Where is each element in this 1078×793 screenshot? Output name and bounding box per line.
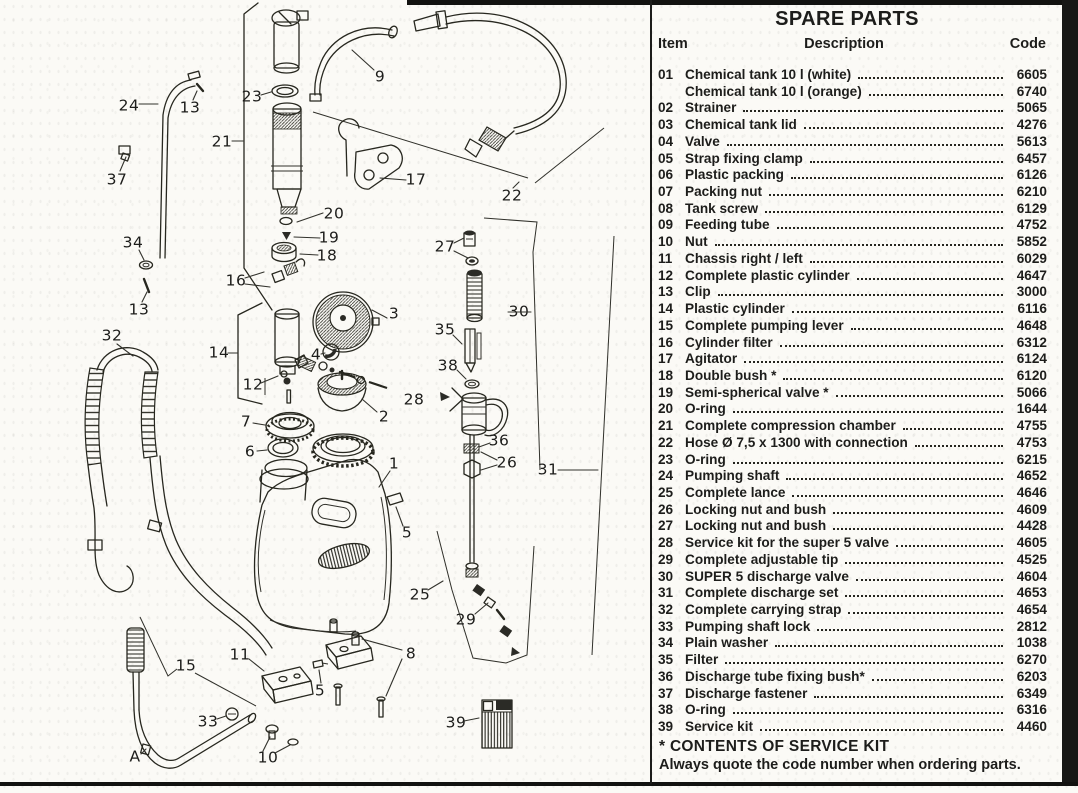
svg-text:14: 14 xyxy=(209,344,230,362)
callout-31: 31 xyxy=(538,461,598,479)
parts-table-row: 27Locking nut and bush4428 xyxy=(658,518,1047,535)
cell-desc: Strap fixing clamp xyxy=(685,151,803,166)
cell-item: 20 xyxy=(658,401,685,416)
svg-text:18: 18 xyxy=(317,247,338,265)
cell-item: 29 xyxy=(658,552,685,567)
cell-desc: Discharge tube fixing bush* xyxy=(685,669,865,684)
parts-table-row: 19Semi-spherical valve *5066 xyxy=(658,385,1047,402)
cell-desc: Double bush * xyxy=(685,368,776,383)
parts-table-row: 10Nut5852 xyxy=(658,234,1047,251)
parts-table-row: 25Complete lance4646 xyxy=(658,485,1047,502)
cell-code: 6215 xyxy=(1009,452,1047,467)
cell-desc: O-ring xyxy=(685,452,726,467)
callout-24: 24 xyxy=(119,97,158,115)
parts-table-row: 16Cylinder filter6312 xyxy=(658,335,1047,352)
cell-desc: O-ring xyxy=(685,401,726,416)
svg-text:A: A xyxy=(129,748,140,766)
cell-code: 6349 xyxy=(1009,686,1047,701)
cell-item: 05 xyxy=(658,151,685,166)
lance-drawing xyxy=(437,435,534,663)
parts-table-row: 18Double bush *6120 xyxy=(658,368,1047,385)
cell-desc: Chemical tank lid xyxy=(685,117,797,132)
dotted-leader xyxy=(769,194,1003,196)
cell-item: 34 xyxy=(658,635,685,650)
svg-text:17: 17 xyxy=(406,171,427,189)
dotted-leader xyxy=(715,244,1003,246)
cell-code: 4605 xyxy=(1009,535,1047,550)
column-header-code: Code xyxy=(996,36,1046,52)
callout-37: 37 xyxy=(107,157,128,189)
cell-code: 4428 xyxy=(1009,518,1047,533)
dotted-leader xyxy=(792,495,1003,497)
dotted-leader xyxy=(903,428,1003,430)
cell-desc: Plastic cylinder xyxy=(685,301,785,316)
callout-25: 25 xyxy=(410,581,443,604)
dotted-leader xyxy=(765,211,1003,213)
parts-table-row: 03Chemical tank lid4276 xyxy=(658,117,1047,134)
svg-text:13: 13 xyxy=(180,99,201,117)
dotted-leader xyxy=(727,144,1003,146)
parts-table-row: 08Tank screw6129 xyxy=(658,201,1047,218)
cell-item: 30 xyxy=(658,569,685,584)
svg-text:8: 8 xyxy=(406,645,416,663)
carrying-strap-drawing xyxy=(85,348,272,655)
parts-table-row: 38O-ring6316 xyxy=(658,702,1047,719)
cell-code: 2812 xyxy=(1009,619,1047,634)
svg-text:9: 9 xyxy=(375,68,385,86)
svg-text:29: 29 xyxy=(456,611,477,629)
parts-table-row: 29Complete adjustable tip4525 xyxy=(658,552,1047,569)
parts-table-row: 33Pumping shaft lock2812 xyxy=(658,619,1047,636)
cell-item: 09 xyxy=(658,217,685,232)
svg-text:35: 35 xyxy=(435,321,456,339)
dotted-leader xyxy=(896,545,1003,547)
cell-item: 26 xyxy=(658,502,685,517)
parts-table-row: 34Plain washer1038 xyxy=(658,635,1047,652)
cell-desc: Tank screw xyxy=(685,201,758,216)
parts-table-row: Chemical tank 10 l (orange)6740 xyxy=(658,84,1047,101)
cell-desc: Complete carrying strap xyxy=(685,602,841,617)
callout-5: 5 xyxy=(396,507,412,542)
dotted-leader xyxy=(791,177,1003,179)
exploded-view-diagram: 2413372123917222019183416271332141234353… xyxy=(0,0,650,783)
parts-table-row: 04Valve5613 xyxy=(658,134,1047,151)
parts-table-row: 21Complete compression chamber4755 xyxy=(658,418,1047,435)
parts-table-row: 12Complete plastic cylinder4647 xyxy=(658,268,1047,285)
svg-text:33: 33 xyxy=(198,713,219,731)
callout-29: 29 xyxy=(456,603,488,629)
cell-code: 6457 xyxy=(1009,151,1047,166)
callout-6: 6 xyxy=(245,443,267,461)
cell-item: 32 xyxy=(658,602,685,617)
cell-desc: Cylinder filter xyxy=(685,335,773,350)
cell-code: 6124 xyxy=(1009,351,1047,366)
cell-item: 04 xyxy=(658,134,685,149)
svg-text:28: 28 xyxy=(404,391,425,409)
cell-desc: Packing nut xyxy=(685,184,762,199)
cell-code: 6203 xyxy=(1009,669,1047,684)
cell-item: 25 xyxy=(658,485,685,500)
callout-34: 34 xyxy=(123,234,144,261)
dotted-leader xyxy=(856,579,1003,581)
svg-text:21: 21 xyxy=(212,133,233,151)
callout-3: 3 xyxy=(372,305,399,323)
cell-item: 39 xyxy=(658,719,685,734)
cell-item: 02 xyxy=(658,100,685,115)
parts-table-row: 32Complete carrying strap4654 xyxy=(658,602,1047,619)
cell-item: 38 xyxy=(658,702,685,717)
parts-table-row: 09Feeding tube4752 xyxy=(658,217,1047,234)
dotted-leader xyxy=(845,595,1003,597)
callout-15: 15 xyxy=(176,657,197,675)
table-header: Item Description Code xyxy=(658,36,1046,52)
svg-text:3: 3 xyxy=(389,305,399,323)
cell-code: 4753 xyxy=(1009,435,1047,450)
svg-text:31: 31 xyxy=(538,461,559,479)
svg-text:34: 34 xyxy=(123,234,144,252)
cell-code: 5065 xyxy=(1009,100,1047,115)
cell-item: 06 xyxy=(658,167,685,182)
cell-desc: Strainer xyxy=(685,100,736,115)
callout-18: 18 xyxy=(300,247,337,265)
cell-item: 37 xyxy=(658,686,685,701)
cell-code: 6740 xyxy=(1009,84,1047,99)
service-kit-footnote: * CONTENTS OF SERVICE KIT xyxy=(659,738,889,756)
callout-36: 36 xyxy=(479,432,509,450)
dotted-leader xyxy=(804,127,1003,129)
cell-item: 16 xyxy=(658,335,685,350)
dotted-leader xyxy=(810,161,1003,163)
cell-desc: Service kit xyxy=(685,719,753,734)
svg-text:25: 25 xyxy=(410,586,431,604)
cell-code: 6120 xyxy=(1009,368,1047,383)
dotted-leader xyxy=(792,311,1003,313)
dotted-leader xyxy=(733,411,1003,413)
cell-item: 23 xyxy=(658,452,685,467)
service-kit-package-drawing xyxy=(482,700,512,748)
svg-text:23: 23 xyxy=(242,88,263,106)
parts-table-row: 23O-ring6215 xyxy=(658,452,1047,469)
cell-item: 11 xyxy=(658,251,685,266)
svg-text:15: 15 xyxy=(176,657,197,675)
callout-21: 21 xyxy=(212,133,243,151)
svg-text:24: 24 xyxy=(119,97,140,115)
svg-text:11: 11 xyxy=(230,646,251,664)
callout-1: 1 xyxy=(379,455,399,488)
parts-table-row: 11Chassis right / left6029 xyxy=(658,251,1047,268)
cell-code: 1038 xyxy=(1009,635,1047,650)
svg-text:37: 37 xyxy=(107,171,128,189)
parts-table-row: 22Hose Ø 7,5 x 1300 with connection4753 xyxy=(658,435,1047,452)
cell-item: 27 xyxy=(658,518,685,533)
callout-17: 17 xyxy=(380,171,426,189)
svg-text:1: 1 xyxy=(389,455,399,473)
cell-code: 5613 xyxy=(1009,134,1047,149)
cell-item: 24 xyxy=(658,468,685,483)
cell-item: 28 xyxy=(658,535,685,550)
cell-desc: Semi-spherical valve * xyxy=(685,385,829,400)
dotted-leader xyxy=(810,261,1003,263)
dotted-leader xyxy=(872,679,1003,681)
dotted-leader xyxy=(858,77,1003,79)
cell-code: 4460 xyxy=(1009,719,1047,734)
callout-20: 20 xyxy=(297,205,344,223)
cell-code: 6316 xyxy=(1009,702,1047,717)
cell-code: 4646 xyxy=(1009,485,1047,500)
cell-item: 10 xyxy=(658,234,685,249)
cell-code: 5852 xyxy=(1009,234,1047,249)
svg-text:13: 13 xyxy=(129,301,150,319)
parts-table-row: 01Chemical tank 10 l (white)6605 xyxy=(658,67,1047,84)
svg-text:20: 20 xyxy=(324,205,345,223)
cell-desc: Complete lance xyxy=(685,485,785,500)
cell-code: 4654 xyxy=(1009,602,1047,617)
cell-code: 4653 xyxy=(1009,585,1047,600)
callout-35: 35 xyxy=(435,321,462,345)
cell-item: 07 xyxy=(658,184,685,199)
callout-23: 23 xyxy=(242,88,271,106)
cell-item: 14 xyxy=(658,301,685,316)
cell-desc: Filter xyxy=(685,652,718,667)
cell-code: 6029 xyxy=(1009,251,1047,266)
svg-text:16: 16 xyxy=(226,272,247,290)
cell-code: 6126 xyxy=(1009,167,1047,182)
dotted-leader xyxy=(780,345,1003,347)
svg-text:26: 26 xyxy=(497,454,518,472)
cell-code: 4609 xyxy=(1009,502,1047,517)
cell-code: 4647 xyxy=(1009,268,1047,283)
pumping-lever-drawing xyxy=(127,617,257,768)
compression-chamber-drawing xyxy=(244,3,308,310)
cell-code: 4752 xyxy=(1009,217,1047,232)
dotted-leader xyxy=(733,712,1003,714)
cell-item: 19 xyxy=(658,385,685,400)
chemical-tank-drawing xyxy=(255,434,403,634)
cell-desc: Complete pumping lever xyxy=(685,318,844,333)
dotted-leader xyxy=(833,512,1003,514)
svg-text:38: 38 xyxy=(438,357,459,375)
dotted-leader xyxy=(783,378,1003,380)
svg-text:4: 4 xyxy=(311,346,321,364)
parts-table-row: 05Strap fixing clamp6457 xyxy=(658,151,1047,168)
dotted-leader xyxy=(848,612,1003,614)
cell-code: 1644 xyxy=(1009,401,1047,416)
callout-38: 38 xyxy=(438,357,466,380)
parts-table-row: 26Locking nut and bush4609 xyxy=(658,502,1047,519)
cell-desc: O-ring xyxy=(685,702,726,717)
dotted-leader xyxy=(857,278,1003,280)
cell-desc: Complete discharge set xyxy=(685,585,838,600)
callout-32: 32 xyxy=(102,327,133,357)
svg-text:10: 10 xyxy=(258,749,279,767)
cell-item: 15 xyxy=(658,318,685,333)
svg-text:5: 5 xyxy=(315,682,325,700)
dotted-leader xyxy=(718,294,1003,296)
parts-table-row: 07Packing nut6210 xyxy=(658,184,1047,201)
cell-code: 4648 xyxy=(1009,318,1047,333)
cell-item: 35 xyxy=(658,652,685,667)
spare-parts-panel: SPARE PARTS Item Description Code 01Chem… xyxy=(652,0,1062,783)
svg-text:27: 27 xyxy=(435,238,456,256)
parts-table-row: 37Discharge fastener6349 xyxy=(658,686,1047,703)
callout-10: 10 xyxy=(258,737,290,767)
cell-desc: Service kit for the super 5 valve xyxy=(685,535,889,550)
cell-item: 22 xyxy=(658,435,685,450)
cell-item: 13 xyxy=(658,284,685,299)
svg-text:12: 12 xyxy=(243,376,264,394)
column-header-item: Item xyxy=(658,36,692,52)
tank-lid-drawing xyxy=(313,292,379,411)
svg-text:7: 7 xyxy=(241,413,251,431)
cell-item: 01 xyxy=(658,67,685,82)
dotted-leader xyxy=(743,110,1003,112)
dotted-leader xyxy=(833,528,1003,530)
page-right-border xyxy=(1062,0,1078,786)
cell-desc: Complete compression chamber xyxy=(685,418,896,433)
cell-item: 31 xyxy=(658,585,685,600)
callout-27: 27 xyxy=(435,238,468,259)
parts-table-row: 17Agitator6124 xyxy=(658,351,1047,368)
cell-code: 5066 xyxy=(1009,385,1047,400)
dotted-leader xyxy=(786,478,1003,480)
feeding-tube-drawing xyxy=(310,25,399,101)
cell-desc: Chassis right / left xyxy=(685,251,803,266)
callout-2: 2 xyxy=(362,399,389,426)
page-title: SPARE PARTS xyxy=(652,8,1042,31)
cell-desc: Nut xyxy=(685,234,708,249)
dotted-leader xyxy=(725,662,1003,664)
callout-26: 26 xyxy=(481,452,517,472)
cell-desc: Locking nut and bush xyxy=(685,518,826,533)
callout-28: 28 xyxy=(404,391,425,409)
dotted-leader xyxy=(836,395,1003,397)
cell-code: 4525 xyxy=(1009,552,1047,567)
diagram-callouts: 2413372123917222019183416271332141234353… xyxy=(102,50,598,767)
callout-9: 9 xyxy=(352,50,385,86)
cell-desc: Locking nut and bush xyxy=(685,502,826,517)
dotted-leader xyxy=(744,361,1003,363)
parts-table-row: 31Complete discharge set4653 xyxy=(658,585,1047,602)
cell-desc: Hose Ø 7,5 x 1300 with connection xyxy=(685,435,908,450)
svg-text:2: 2 xyxy=(379,408,389,426)
callout-33: 33 xyxy=(198,713,226,731)
cell-code: 6270 xyxy=(1009,652,1047,667)
cell-item: 36 xyxy=(658,669,685,684)
cell-code: 3000 xyxy=(1009,284,1047,299)
parts-table-row: 28Service kit for the super 5 valve4605 xyxy=(658,535,1047,552)
callout-39: 39 xyxy=(446,714,479,732)
dotted-leader xyxy=(817,629,1003,631)
svg-text:39: 39 xyxy=(446,714,467,732)
dotted-leader xyxy=(814,696,1003,698)
parts-table-row: 39Service kit4460 xyxy=(658,719,1047,736)
scanned-parts-page: 2413372123917222019183416271332141234353… xyxy=(0,0,1078,793)
callout-7: 7 xyxy=(241,413,265,431)
parts-table-row: 36Discharge tube fixing bush*6203 xyxy=(658,669,1047,686)
callout-22: 22 xyxy=(502,182,523,205)
parts-table-row: 06Plastic packing6126 xyxy=(658,167,1047,184)
hose-drawing xyxy=(313,11,604,183)
parts-table-row: 30SUPER 5 discharge valve4604 xyxy=(658,569,1047,586)
dotted-leader xyxy=(777,227,1003,229)
cell-desc: Agitator xyxy=(685,351,737,366)
cell-item: 03 xyxy=(658,117,685,132)
dotted-leader xyxy=(760,729,1003,731)
cell-code: 6605 xyxy=(1009,67,1047,82)
parts-table: 01Chemical tank 10 l (white)6605Chemical… xyxy=(658,67,1047,736)
cell-desc: Pumping shaft lock xyxy=(685,619,810,634)
callout-12: 12 xyxy=(243,376,278,394)
svg-text:19: 19 xyxy=(319,229,340,247)
dotted-leader xyxy=(851,328,1003,330)
cell-desc: Valve xyxy=(685,134,720,149)
cell-desc: SUPER 5 discharge valve xyxy=(685,569,849,584)
packing-nut-drawing xyxy=(266,413,314,458)
dotted-leader xyxy=(845,562,1003,564)
cell-code: 4276 xyxy=(1009,117,1047,132)
callout-5: 5 xyxy=(315,670,325,700)
dotted-leader xyxy=(869,94,1003,96)
parts-table-row: 35Filter6270 xyxy=(658,652,1047,669)
cell-code: 6210 xyxy=(1009,184,1047,199)
callout-14: 14 xyxy=(209,344,238,362)
cell-desc: Plastic packing xyxy=(685,167,784,182)
parts-table-row: 15Complete pumping lever4648 xyxy=(658,318,1047,335)
cell-desc: Clip xyxy=(685,284,711,299)
discharge-valve-parts-drawing xyxy=(464,231,482,389)
callout-13: 13 xyxy=(180,91,201,117)
parts-table-row: 14Plastic cylinder6116 xyxy=(658,301,1047,318)
cell-item: 33 xyxy=(658,619,685,634)
callout-19: 19 xyxy=(294,229,339,247)
cell-item: 08 xyxy=(658,201,685,216)
parts-table-row: 13Clip3000 xyxy=(658,284,1047,301)
cell-item: 17 xyxy=(658,351,685,366)
callout-30: 30 xyxy=(508,303,531,321)
cell-desc: Complete adjustable tip xyxy=(685,552,838,567)
cell-desc: Chemical tank 10 l (white) xyxy=(685,67,851,82)
dotted-leader xyxy=(733,462,1003,464)
svg-text:36: 36 xyxy=(489,432,510,450)
cell-desc: Feeding tube xyxy=(685,217,770,232)
cell-desc: Discharge fastener xyxy=(685,686,807,701)
cell-desc: Pumping shaft xyxy=(685,468,779,483)
svg-text:32: 32 xyxy=(102,327,123,345)
cell-code: 6312 xyxy=(1009,335,1047,350)
cell-desc: Chemical tank 10 l (orange) xyxy=(685,84,862,99)
dotted-leader xyxy=(775,645,1003,647)
cell-code: 6116 xyxy=(1009,301,1047,316)
cell-item: 18 xyxy=(658,368,685,383)
cell-desc: Complete plastic cylinder xyxy=(685,268,850,283)
cell-desc: Plain washer xyxy=(685,635,768,650)
parts-table-row: 02Strainer5065 xyxy=(658,100,1047,117)
svg-text:22: 22 xyxy=(502,187,523,205)
callout-13: 13 xyxy=(129,292,150,319)
cell-item: 12 xyxy=(658,268,685,283)
parts-table-row: 24Pumping shaft4652 xyxy=(658,468,1047,485)
cell-code: 4652 xyxy=(1009,468,1047,483)
parts-table-row: 20O-ring1644 xyxy=(658,401,1047,418)
cell-code: 6129 xyxy=(1009,201,1047,216)
cell-code: 4604 xyxy=(1009,569,1047,584)
svg-text:6: 6 xyxy=(245,443,255,461)
ordering-note: Always quote the code number when orderi… xyxy=(659,757,1021,773)
callout-11: 11 xyxy=(230,646,264,672)
dotted-leader xyxy=(915,445,1003,447)
discharge-valve-body-drawing xyxy=(462,218,614,655)
cell-item: 21 xyxy=(658,418,685,433)
